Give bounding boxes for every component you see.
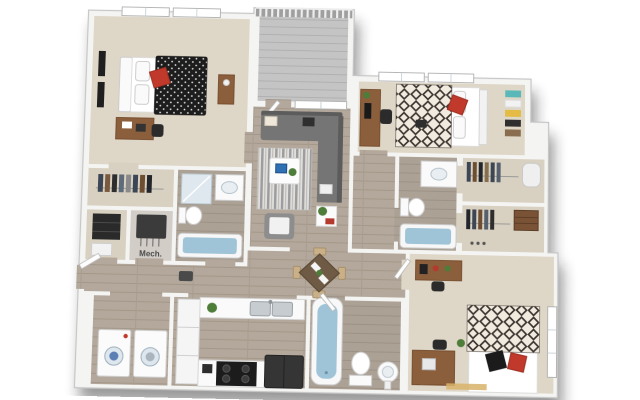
toilet bbox=[178, 206, 201, 224]
red-pillow bbox=[508, 353, 527, 372]
bed-3 bbox=[466, 305, 539, 393]
sofa-pillow bbox=[265, 117, 277, 126]
desk-chair bbox=[380, 109, 392, 124]
bed-2 bbox=[395, 84, 487, 148]
bathtub bbox=[400, 224, 456, 249]
armchair bbox=[264, 213, 295, 239]
desk-chair bbox=[433, 340, 447, 350]
balcony-railing bbox=[256, 7, 353, 19]
bathtub bbox=[311, 298, 343, 385]
toilet bbox=[400, 198, 424, 216]
stove bbox=[216, 361, 257, 386]
mechanical-unit bbox=[136, 214, 167, 238]
dryer bbox=[133, 330, 167, 377]
console bbox=[179, 271, 193, 281]
lamp-icon bbox=[223, 80, 229, 86]
sink-basin bbox=[250, 301, 270, 315]
mech-room-label: Mech. bbox=[139, 249, 162, 259]
shelving-unit bbox=[92, 213, 121, 239]
floor-plan-scene: Mech. bbox=[0, 0, 640, 400]
monitor-icon bbox=[364, 103, 371, 119]
desk-chair bbox=[431, 281, 444, 291]
sofa-pillow bbox=[303, 117, 315, 126]
living-room-window bbox=[295, 101, 347, 110]
desk-chair bbox=[151, 124, 163, 137]
balcony-deck bbox=[258, 16, 349, 103]
red-book bbox=[325, 218, 334, 224]
wall-art-icon bbox=[97, 82, 105, 107]
sink-counter bbox=[200, 297, 305, 319]
floor-mat bbox=[446, 383, 486, 390]
coffee-maker-icon bbox=[202, 364, 212, 373]
bedroom-3-window bbox=[547, 307, 556, 378]
sofa-pillow bbox=[320, 185, 332, 194]
coffee-table bbox=[269, 158, 299, 184]
printer-icon bbox=[422, 358, 435, 369]
nightstand bbox=[218, 75, 235, 105]
book bbox=[416, 120, 427, 128]
laptop-icon bbox=[276, 164, 287, 173]
cabinet-column bbox=[176, 299, 201, 384]
bed-1 bbox=[118, 55, 207, 115]
floor-plan-svg: Mech. bbox=[0, 0, 640, 400]
side-table bbox=[316, 206, 336, 226]
sink-basin bbox=[272, 302, 292, 316]
bathtub bbox=[177, 233, 242, 258]
plan-perspective-wrapper: Mech. bbox=[0, 0, 640, 400]
washer bbox=[97, 329, 131, 376]
wall-art-icon bbox=[98, 51, 106, 76]
white-bin bbox=[91, 243, 111, 255]
hall-right-floor bbox=[352, 156, 395, 250]
dresser bbox=[514, 210, 538, 230]
water-heater bbox=[522, 163, 540, 187]
